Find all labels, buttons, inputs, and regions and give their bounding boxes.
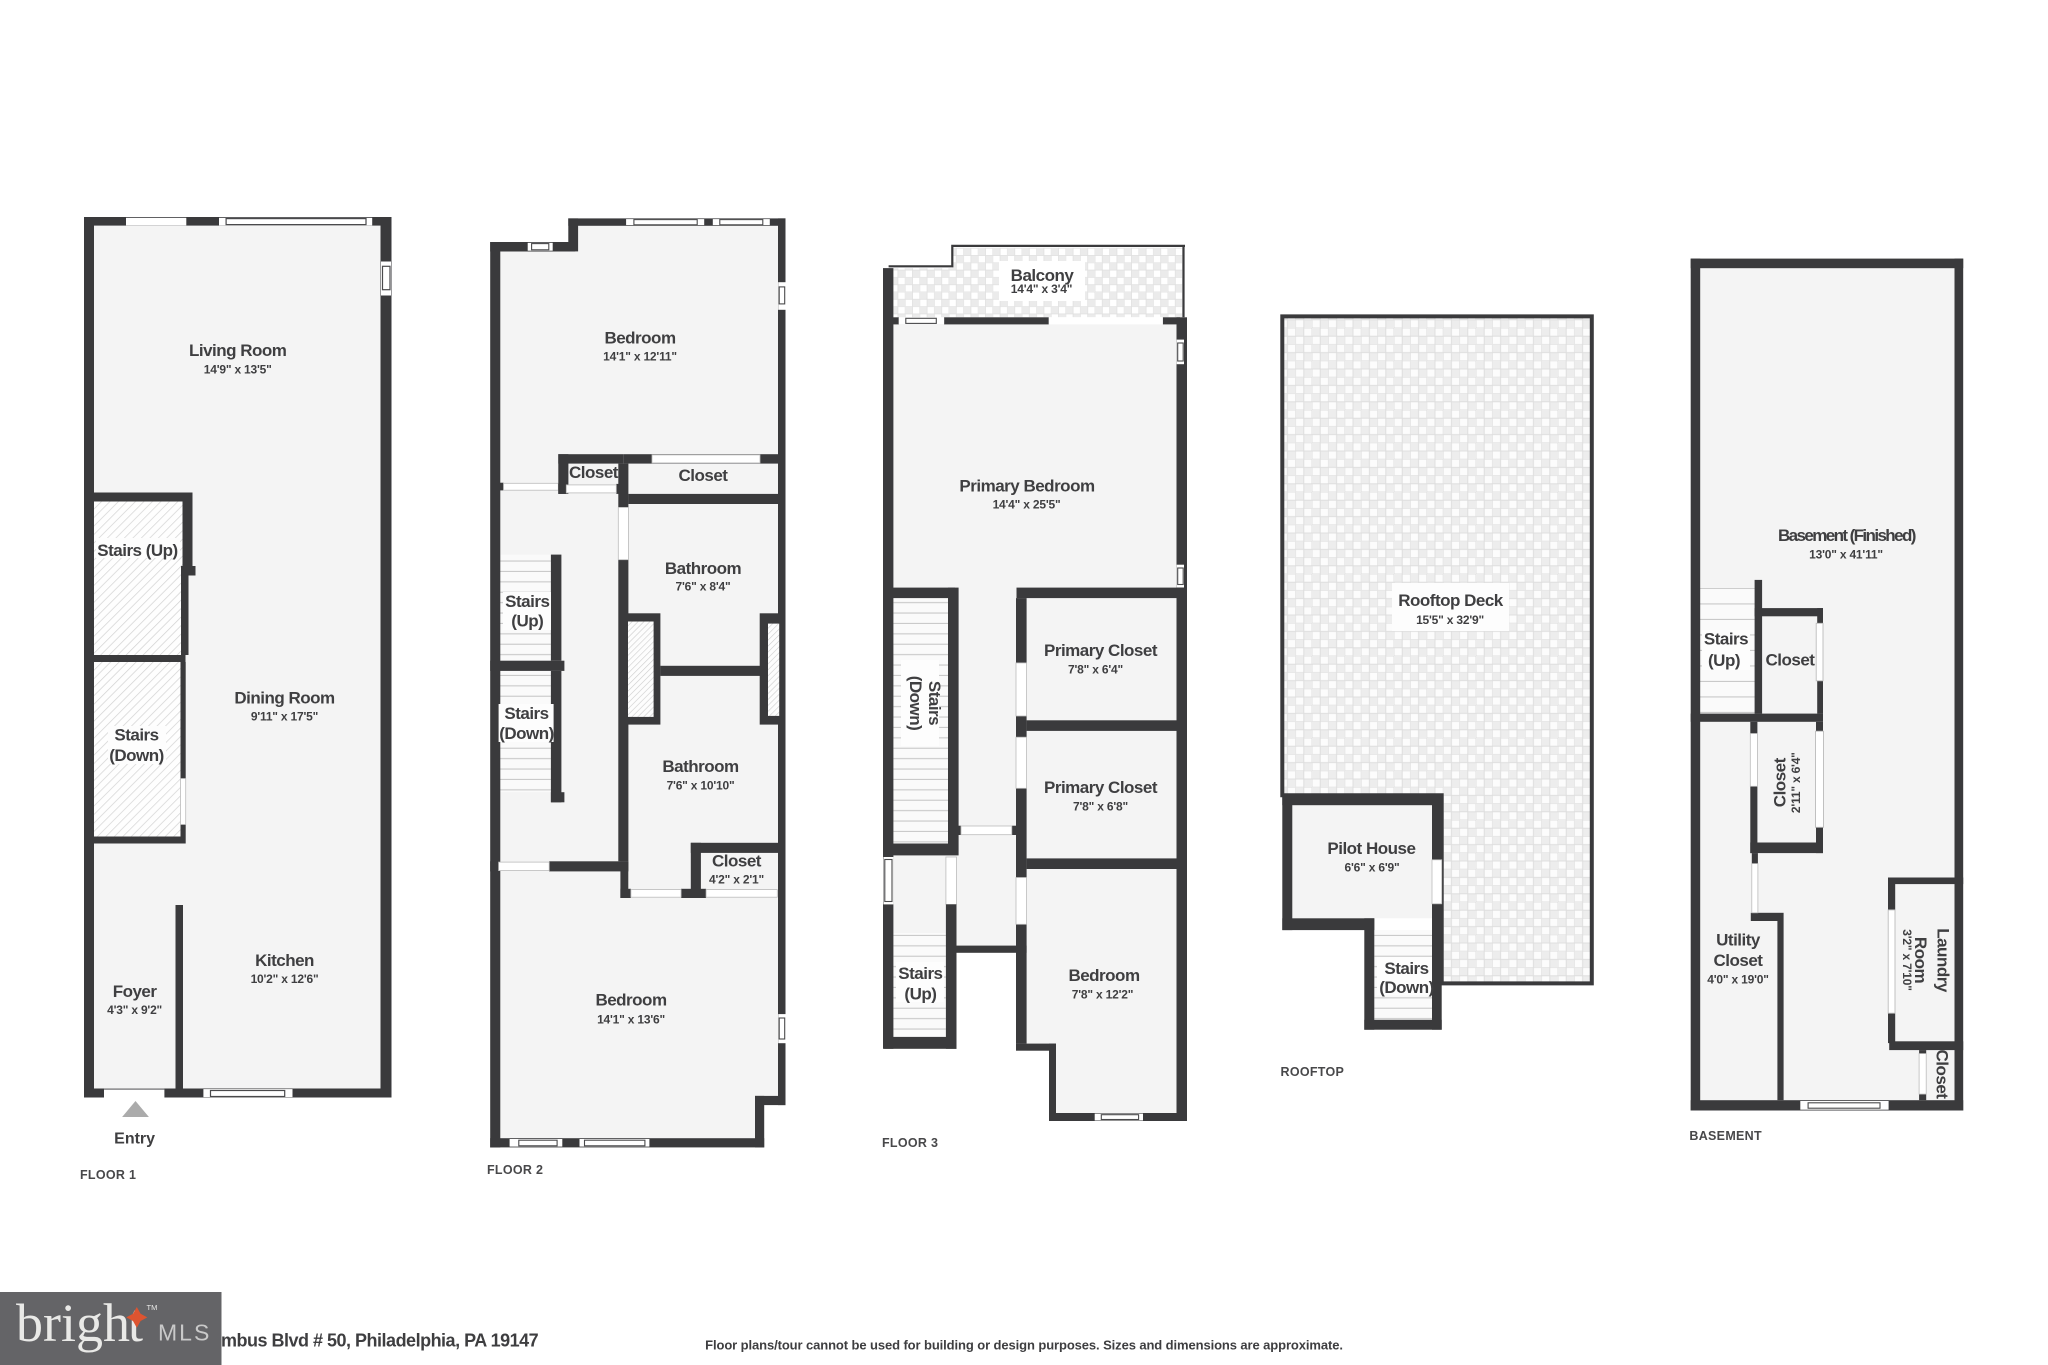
- svg-text:Closet: Closet: [1766, 651, 1816, 670]
- svg-text:mbus Blvd # 50, Philadelphia,: mbus Blvd # 50, Philadelphia, PA 19147: [221, 1331, 539, 1351]
- svg-text:7'8" x 6'8": 7'8" x 6'8": [1073, 800, 1128, 814]
- svg-text:Bathroom: Bathroom: [665, 559, 742, 578]
- svg-text:Stairs: Stairs: [505, 592, 549, 611]
- svg-text:Stairs: Stairs: [898, 964, 942, 983]
- svg-text:Stairs: Stairs: [1384, 959, 1428, 978]
- svg-text:(Down): (Down): [1379, 978, 1434, 997]
- svg-text:Bedroom: Bedroom: [1068, 966, 1140, 985]
- svg-text:Floor plans/tour cannot be use: Floor plans/tour cannot be used for buil…: [705, 1338, 1343, 1353]
- svg-text:14'9" x 13'5": 14'9" x 13'5": [204, 363, 272, 377]
- svg-text:13'0" x 41'11": 13'0" x 41'11": [1809, 548, 1883, 562]
- svg-text:(Down): (Down): [906, 676, 925, 731]
- svg-text:Kitchen: Kitchen: [255, 951, 314, 970]
- svg-text:Stairs: Stairs: [925, 681, 944, 725]
- svg-text:Dining Room: Dining Room: [234, 689, 335, 708]
- svg-text:TM: TM: [147, 1303, 158, 1312]
- svg-text:6'6" x 6'9": 6'6" x 6'9": [1345, 861, 1400, 875]
- svg-text:14'4" x 3'4": 14'4" x 3'4": [1011, 282, 1072, 296]
- svg-text:Primary Closet: Primary Closet: [1044, 778, 1158, 797]
- svg-text:Rooftop Deck: Rooftop Deck: [1398, 591, 1504, 610]
- svg-text:(Up): (Up): [904, 985, 936, 1004]
- svg-text:2'11" x 6'4": 2'11" x 6'4": [1789, 752, 1803, 813]
- svg-text:Stairs: Stairs: [504, 704, 548, 723]
- svg-text:Stairs: Stairs: [1704, 630, 1748, 649]
- svg-text:Stairs (Up): Stairs (Up): [97, 541, 177, 560]
- svg-text:Entry: Entry: [114, 1131, 155, 1148]
- svg-text:4'3" x 9'2": 4'3" x 9'2": [107, 1003, 162, 1017]
- svg-text:Primary Bedroom: Primary Bedroom: [959, 477, 1095, 496]
- svg-text:10'2" x 12'6": 10'2" x 12'6": [251, 972, 319, 986]
- svg-text:14'1" x 13'6": 14'1" x 13'6": [597, 1013, 665, 1027]
- svg-text:Laundry: Laundry: [1934, 928, 1953, 993]
- svg-text:Pilot House: Pilot House: [1327, 839, 1415, 858]
- svg-text:Foyer: Foyer: [113, 982, 158, 1001]
- svg-text:Closet: Closet: [1933, 1050, 1952, 1100]
- svg-text:14'1" x 12'11": 14'1" x 12'11": [603, 350, 677, 364]
- svg-text:Primary Closet: Primary Closet: [1044, 641, 1158, 660]
- svg-text:Closet: Closet: [1714, 951, 1764, 970]
- svg-text:ROOFTOP: ROOFTOP: [1281, 1065, 1345, 1079]
- svg-text:3'2" x 7'10": 3'2" x 7'10": [1900, 929, 1914, 990]
- svg-text:4'0" x 19'0": 4'0" x 19'0": [1707, 973, 1768, 987]
- svg-text:Closet: Closet: [569, 463, 619, 482]
- svg-text:Stairs: Stairs: [114, 726, 158, 745]
- svg-text:4'2" x 2'1": 4'2" x 2'1": [709, 873, 764, 887]
- svg-text:Closet: Closet: [679, 466, 729, 485]
- svg-text:brigh: brigh: [16, 1293, 130, 1353]
- svg-text:7'6" x 8'4": 7'6" x 8'4": [676, 580, 731, 594]
- svg-text:Basement (Finished): Basement (Finished): [1778, 526, 1916, 545]
- svg-text:FLOOR 1: FLOOR 1: [80, 1168, 136, 1182]
- svg-text:14'4" x 25'5": 14'4" x 25'5": [993, 498, 1061, 512]
- svg-text:MLS: MLS: [158, 1320, 211, 1346]
- svg-text:Living Room: Living Room: [189, 341, 287, 360]
- svg-text:(Up): (Up): [511, 612, 543, 631]
- svg-text:7'8" x 12'2": 7'8" x 12'2": [1072, 988, 1133, 1002]
- svg-text:FLOOR 2: FLOOR 2: [487, 1163, 543, 1177]
- svg-text:7'6" x 10'10": 7'6" x 10'10": [667, 779, 735, 793]
- svg-text:Closet: Closet: [712, 852, 762, 871]
- svg-text:Closet: Closet: [1771, 757, 1790, 807]
- svg-text:Utility: Utility: [1716, 931, 1761, 950]
- svg-text:FLOOR 3: FLOOR 3: [882, 1136, 938, 1150]
- svg-text:(Up): (Up): [1708, 651, 1740, 670]
- svg-text:7'8" x 6'4": 7'8" x 6'4": [1068, 663, 1123, 677]
- svg-text:Bedroom: Bedroom: [604, 329, 676, 348]
- svg-text:9'11" x 17'5": 9'11" x 17'5": [251, 710, 318, 724]
- svg-text:(Down): (Down): [109, 746, 164, 765]
- svg-text:Bathroom: Bathroom: [662, 757, 739, 776]
- svg-text:15'5" x 32'9": 15'5" x 32'9": [1416, 613, 1484, 627]
- svg-text:BASEMENT: BASEMENT: [1689, 1129, 1762, 1143]
- svg-text:(Down): (Down): [499, 724, 554, 743]
- svg-text:Bedroom: Bedroom: [595, 991, 667, 1010]
